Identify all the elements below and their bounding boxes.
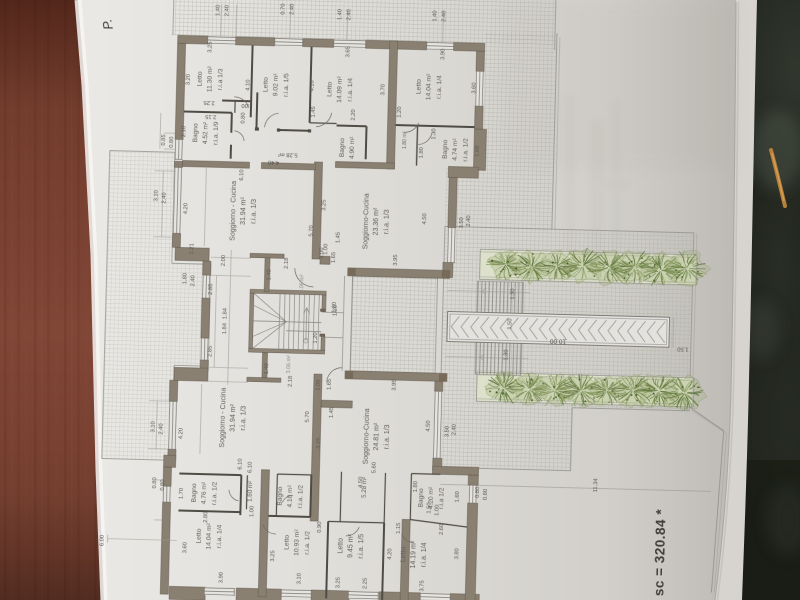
svg-text:11.34: 11.34 bbox=[593, 478, 599, 493]
svg-text:Bagno: Bagno bbox=[442, 139, 450, 159]
svg-text:5.28 m²: 5.28 m² bbox=[278, 151, 298, 158]
svg-text:r.i.a. 1/5: r.i.a. 1/5 bbox=[283, 73, 291, 97]
svg-text:2.40: 2.40 bbox=[158, 423, 164, 434]
svg-text:1.45: 1.45 bbox=[329, 407, 335, 418]
svg-text:3.25: 3.25 bbox=[270, 550, 276, 561]
svg-text:1.40: 1.40 bbox=[215, 5, 221, 16]
svg-text:3.10: 3.10 bbox=[150, 421, 156, 432]
svg-text:r.i.a. 1/2: r.i.a. 1/2 bbox=[297, 485, 305, 509]
svg-text:r.i.a. 1/2: r.i.a. 1/2 bbox=[304, 531, 312, 555]
svg-text:2.85: 2.85 bbox=[207, 346, 213, 357]
svg-text:Letto: Letto bbox=[326, 82, 333, 97]
svg-text:1.30: 1.30 bbox=[503, 349, 509, 360]
svg-text:6.10: 6.10 bbox=[237, 458, 243, 469]
svg-text:2.60: 2.60 bbox=[439, 524, 445, 535]
svg-text:3.70: 3.70 bbox=[380, 84, 386, 95]
svg-text:1.60: 1.60 bbox=[455, 491, 461, 502]
svg-text:Letto: Letto bbox=[197, 71, 204, 86]
svg-text:0.80: 0.80 bbox=[152, 477, 158, 488]
svg-text:Letto: Letto bbox=[196, 528, 203, 543]
svg-text:3.06 m²: 3.06 m² bbox=[286, 355, 292, 374]
svg-text:3.60: 3.60 bbox=[471, 82, 477, 93]
svg-text:2.18: 2.18 bbox=[284, 258, 290, 269]
svg-text:2.40: 2.40 bbox=[346, 9, 352, 20]
svg-text:31.94 m²: 31.94 m² bbox=[230, 403, 238, 431]
svg-text:Letto: Letto bbox=[400, 546, 407, 562]
svg-text:Letto: Letto bbox=[415, 79, 422, 94]
svg-text:2.40: 2.40 bbox=[224, 5, 230, 16]
svg-text:2.40: 2.40 bbox=[441, 11, 447, 22]
svg-text:1.45: 1.45 bbox=[311, 106, 317, 117]
svg-text:4.10 m²: 4.10 m² bbox=[287, 484, 295, 507]
svg-text:r.i.a. 1/5: r.i.a. 1/5 bbox=[358, 534, 366, 559]
svg-text:0.80: 0.80 bbox=[169, 136, 175, 147]
svg-text:Bagno: Bagno bbox=[339, 138, 347, 158]
svg-text:Soggiorno-Cucina: Soggiorno-Cucina bbox=[362, 193, 370, 249]
svg-text:4.50: 4.50 bbox=[426, 420, 432, 431]
svg-text:Bagno: Bagno bbox=[192, 123, 200, 143]
svg-text:3.65: 3.65 bbox=[345, 46, 351, 57]
svg-text:3.80: 3.80 bbox=[454, 548, 460, 559]
svg-text:3.90: 3.90 bbox=[219, 572, 225, 583]
svg-text:r.i.a. 1/3: r.i.a. 1/3 bbox=[383, 424, 391, 449]
svg-text:r.i.a. 1/2: r.i.a. 1/2 bbox=[462, 138, 470, 162]
svg-text:4.20: 4.20 bbox=[183, 203, 189, 214]
svg-text:1.00: 1.00 bbox=[316, 379, 322, 390]
svg-text:4.10: 4.10 bbox=[309, 80, 315, 91]
svg-text:Soggiorno-Cucina: Soggiorno-Cucina bbox=[363, 408, 371, 464]
svg-text:r.i.a. 1/4: r.i.a. 1/4 bbox=[436, 75, 444, 99]
svg-text:2.25: 2.25 bbox=[203, 99, 214, 105]
svg-text:1.60: 1.60 bbox=[475, 145, 481, 156]
svg-text:4.40: 4.40 bbox=[268, 159, 279, 165]
svg-text:3.25: 3.25 bbox=[335, 577, 341, 588]
svg-text:3.10: 3.10 bbox=[153, 190, 159, 201]
svg-text:2.40: 2.40 bbox=[289, 4, 295, 15]
svg-text:r.i.a. 1/4: r.i.a. 1/4 bbox=[420, 542, 428, 567]
svg-text:2.15: 2.15 bbox=[205, 113, 216, 119]
svg-text:10.00: 10.00 bbox=[549, 337, 566, 344]
svg-text:1.00: 1.00 bbox=[249, 506, 255, 517]
svg-text:2.18: 2.18 bbox=[288, 376, 294, 387]
svg-text:Letto: Letto bbox=[283, 535, 290, 550]
svg-text:1.40: 1.40 bbox=[432, 10, 438, 21]
svg-text:1.21: 1.21 bbox=[189, 243, 195, 254]
svg-text:0.90: 0.90 bbox=[317, 521, 323, 532]
svg-text:0.70: 0.70 bbox=[280, 3, 286, 14]
svg-text:r.i.a. 1/3: r.i.a. 1/3 bbox=[240, 406, 248, 431]
svg-text:1.80 m²: 1.80 m² bbox=[402, 131, 408, 149]
svg-text:4.20: 4.20 bbox=[387, 548, 393, 559]
svg-text:2.40: 2.40 bbox=[451, 424, 457, 435]
svg-text:r.i.a 1/3: r.i.a 1/3 bbox=[217, 68, 225, 90]
svg-text:2.40: 2.40 bbox=[190, 275, 196, 286]
svg-text:2.80: 2.80 bbox=[203, 511, 209, 522]
svg-text:3.90: 3.90 bbox=[440, 49, 446, 60]
svg-text:1.65: 1.65 bbox=[327, 379, 333, 390]
svg-text:1.20: 1.20 bbox=[313, 332, 319, 343]
svg-text:Letto: Letto bbox=[262, 77, 269, 92]
svg-text:3.25: 3.25 bbox=[321, 199, 327, 210]
svg-text:4.90 m²: 4.90 m² bbox=[349, 136, 357, 159]
svg-text:2.10: 2.10 bbox=[181, 126, 187, 137]
svg-text:r.i.a. 1/4: r.i.a. 1/4 bbox=[347, 78, 355, 102]
svg-text:4.74 m²: 4.74 m² bbox=[452, 138, 460, 161]
svg-text:5.60: 5.60 bbox=[371, 462, 377, 473]
svg-text:14.09 m²: 14.09 m² bbox=[336, 76, 344, 103]
svg-text:1.60 m²: 1.60 m² bbox=[247, 481, 255, 502]
svg-text:2.25: 2.25 bbox=[362, 578, 368, 589]
svg-text:1.84: 1.84 bbox=[222, 307, 228, 319]
svg-text:Bagno: Bagno bbox=[277, 486, 285, 506]
svg-text:1.50: 1.50 bbox=[677, 345, 688, 351]
svg-text:1.15: 1.15 bbox=[396, 523, 402, 534]
svg-text:sc = 320.84 *: sc = 320.84 * bbox=[651, 508, 668, 596]
svg-text:r.i.a. 1/3: r.i.a. 1/3 bbox=[250, 199, 258, 224]
svg-text:3.95: 3.95 bbox=[392, 379, 398, 390]
svg-text:0.80: 0.80 bbox=[483, 489, 489, 500]
svg-text:3.95: 3.95 bbox=[393, 254, 399, 265]
svg-text:1.40: 1.40 bbox=[264, 363, 270, 374]
svg-text:1.40: 1.40 bbox=[337, 9, 343, 20]
svg-text:3.50: 3.50 bbox=[444, 426, 450, 437]
svg-text:4.10: 4.10 bbox=[245, 79, 251, 90]
svg-text:4.20 m²: 4.20 m² bbox=[428, 486, 436, 509]
svg-text:11.30 m²: 11.30 m² bbox=[207, 65, 215, 92]
svg-text:4.50: 4.50 bbox=[422, 213, 428, 224]
svg-text:9.02 m²: 9.02 m² bbox=[272, 73, 280, 97]
svg-text:14.19 m²: 14.19 m² bbox=[410, 540, 418, 568]
svg-text:3.25: 3.25 bbox=[316, 437, 322, 448]
svg-text:3.20: 3.20 bbox=[186, 74, 192, 85]
svg-text:4.20: 4.20 bbox=[178, 428, 184, 439]
svg-text:3.10: 3.10 bbox=[297, 573, 303, 584]
svg-text:1.50: 1.50 bbox=[507, 318, 513, 329]
svg-text:0.80: 0.80 bbox=[475, 487, 481, 498]
svg-text:1.00: 1.00 bbox=[323, 244, 329, 255]
svg-text:3.25: 3.25 bbox=[207, 41, 213, 52]
svg-text:1.80: 1.80 bbox=[419, 147, 425, 158]
svg-text:2.20: 2.20 bbox=[351, 109, 357, 120]
svg-text:6.10: 6.10 bbox=[239, 169, 245, 180]
svg-text:1.84: 1.84 bbox=[222, 322, 228, 334]
svg-text:r.i.a. 1/9: r.i.a. 1/9 bbox=[212, 121, 220, 145]
svg-text:1.20: 1.20 bbox=[333, 305, 339, 316]
svg-text:r.i.a. 1/4: r.i.a. 1/4 bbox=[216, 524, 224, 548]
svg-text:1.30: 1.30 bbox=[510, 288, 516, 299]
svg-text:1.40: 1.40 bbox=[266, 269, 272, 280]
svg-text:r.i.a. 1/2: r.i.a. 1/2 bbox=[211, 481, 219, 505]
svg-text:r.i.a. 1/3: r.i.a. 1/3 bbox=[383, 209, 391, 234]
svg-text:9.45 m²: 9.45 m² bbox=[347, 533, 355, 558]
svg-text:3.75: 3.75 bbox=[419, 580, 425, 591]
svg-text:0.80: 0.80 bbox=[160, 479, 166, 490]
svg-text:2.40: 2.40 bbox=[466, 215, 472, 226]
svg-text:0.80: 0.80 bbox=[241, 112, 247, 123]
svg-text:1.65: 1.65 bbox=[331, 252, 337, 263]
svg-text:5.70: 5.70 bbox=[309, 225, 315, 236]
svg-text:r.i.a 1/2: r.i.a 1/2 bbox=[438, 487, 446, 509]
svg-text:14.04 m²: 14.04 m² bbox=[425, 73, 433, 100]
svg-text:3.50: 3.50 bbox=[459, 217, 465, 228]
svg-text:31.94 m²: 31.94 m² bbox=[240, 197, 248, 225]
svg-text:5.70: 5.70 bbox=[305, 411, 311, 422]
svg-text:1.70: 1.70 bbox=[179, 488, 185, 499]
svg-text:2.85: 2.85 bbox=[208, 284, 214, 295]
svg-text:2.00: 2.00 bbox=[221, 255, 227, 266]
svg-text:Bagno: Bagno bbox=[418, 488, 426, 508]
svg-text:10.93 m²: 10.93 m² bbox=[293, 529, 301, 556]
svg-text:4.76 m²: 4.76 m² bbox=[201, 481, 209, 504]
svg-text:1.20: 1.20 bbox=[397, 106, 403, 117]
svg-text:14.04 m²: 14.04 m² bbox=[206, 522, 214, 549]
svg-text:3.06 m²: 3.06 m² bbox=[299, 274, 305, 293]
svg-text:Bagno: Bagno bbox=[191, 483, 199, 503]
svg-text:4.52 m²: 4.52 m² bbox=[202, 121, 210, 144]
svg-text:6.10: 6.10 bbox=[247, 462, 253, 473]
svg-text:6.00: 6.00 bbox=[99, 535, 105, 546]
svg-text:1.80: 1.80 bbox=[182, 273, 188, 284]
svg-text:0.85: 0.85 bbox=[161, 134, 167, 145]
svg-text:2.40: 2.40 bbox=[161, 192, 167, 203]
svg-text:1.30: 1.30 bbox=[431, 128, 437, 139]
svg-text:1.45: 1.45 bbox=[335, 232, 341, 243]
svg-text:1.00: 1.00 bbox=[241, 102, 252, 108]
svg-text:Letto: Letto bbox=[337, 538, 344, 554]
svg-text:24.81 m²: 24.81 m² bbox=[373, 422, 381, 450]
svg-text:5.28 m²: 5.28 m² bbox=[361, 477, 369, 498]
svg-text:23.36 m²: 23.36 m² bbox=[373, 207, 381, 235]
svg-text:3.60: 3.60 bbox=[182, 542, 188, 553]
